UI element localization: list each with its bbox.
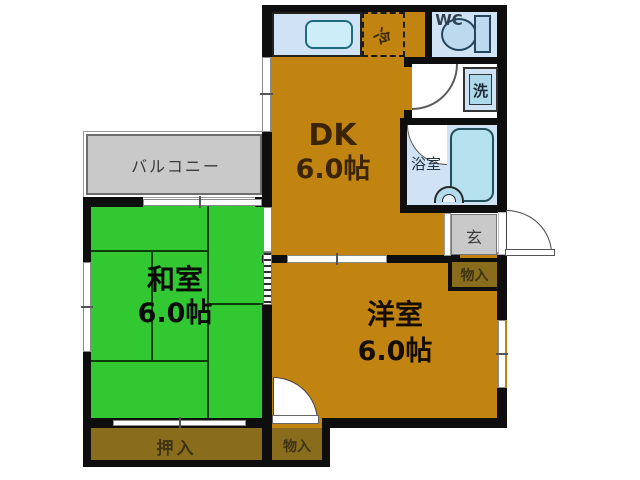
entrance-label: 玄 — [451, 224, 497, 248]
fusuma-hatched-segment — [263, 252, 272, 305]
wall-yoshitsu-bottom — [322, 418, 507, 428]
wc-label: WC — [432, 11, 466, 29]
bath-basin-inner — [442, 194, 456, 202]
tatami-line-horizontal-top — [90, 250, 208, 252]
wall-wc-left — [425, 5, 432, 64]
storage-entrance-label: 物入 — [448, 265, 501, 285]
tatami-line-horizontal-bottom — [90, 360, 208, 362]
dk-size-label: 6.0帖 — [278, 156, 388, 184]
wall-wc-bottom — [412, 57, 507, 64]
oshiire-sliding-door-tick — [179, 417, 181, 428]
yoshitsu-size-label: 6.0帖 — [330, 338, 460, 366]
wall-washitsu-divider — [262, 305, 272, 428]
window-yoshitsu-right-tick — [496, 353, 508, 355]
bathroom-label: 浴室 — [403, 153, 449, 174]
washitsu-label: 和室 — [100, 265, 250, 294]
washer-label: 洗 — [468, 80, 493, 101]
kitchen-sink-icon — [305, 20, 353, 49]
entrance-door-arc — [506, 210, 552, 254]
yoshitsu-label: 洋室 — [330, 300, 460, 329]
balcony-label: バルコニー — [96, 153, 256, 177]
floorplan: バルコニー WC — [0, 0, 640, 480]
wall-hall-left-top — [404, 57, 412, 67]
window-washitsu-left-tick — [81, 306, 93, 308]
wall-bottom-outer — [83, 460, 330, 467]
opening-dk-yoshitsu-tick — [336, 253, 338, 265]
toilet-tank-icon — [474, 15, 491, 53]
wall-dk-left-lower — [262, 132, 272, 207]
dk-label: DK — [280, 120, 385, 152]
washitsu-size-label: 6.0帖 — [100, 300, 250, 328]
wall-right-upper — [497, 5, 507, 212]
wall-storage-divider — [262, 418, 272, 467]
window-balcony-tick — [199, 196, 201, 208]
door-washitsu-dk-opening — [263, 207, 272, 252]
oshiire-label: 押入 — [91, 434, 262, 459]
storage-bottom-label: 物入 — [272, 436, 322, 456]
wall-bath-top — [400, 118, 507, 125]
window-balcony-opening — [143, 199, 262, 206]
entrance-step-line — [444, 213, 451, 256]
yoshitsu-door-leaf — [272, 415, 319, 424]
wall-dk-left-upper — [262, 5, 272, 57]
wall-washitsu-left-lower — [83, 352, 91, 467]
entrance-door-leaf — [505, 249, 555, 256]
wall-washitsu-top — [83, 197, 143, 207]
window-dk-left-tick — [260, 93, 273, 95]
wall-bath-bottom — [400, 205, 507, 213]
wall-top — [262, 5, 507, 12]
